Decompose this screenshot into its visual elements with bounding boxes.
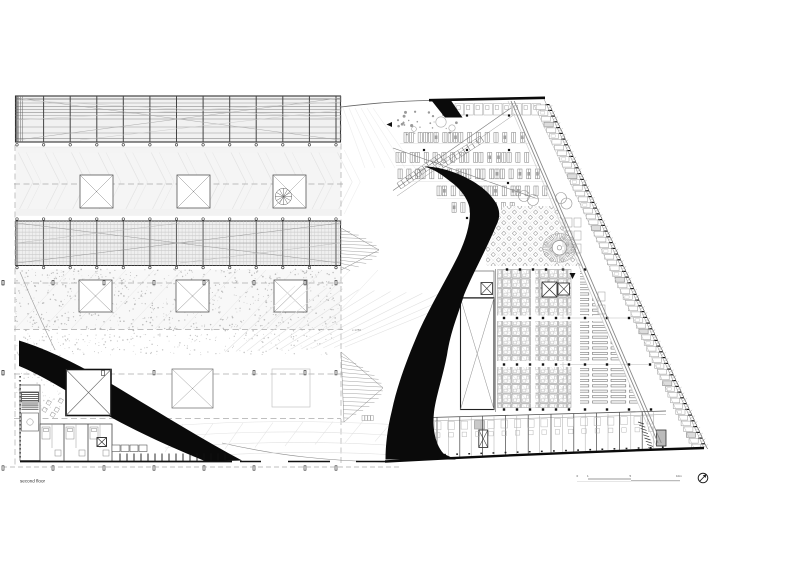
svg-text:second floor: second floor [20,479,45,484]
svg-text:c.1786: c.1786 [352,328,361,332]
svg-text:10m: 10m [676,474,682,478]
